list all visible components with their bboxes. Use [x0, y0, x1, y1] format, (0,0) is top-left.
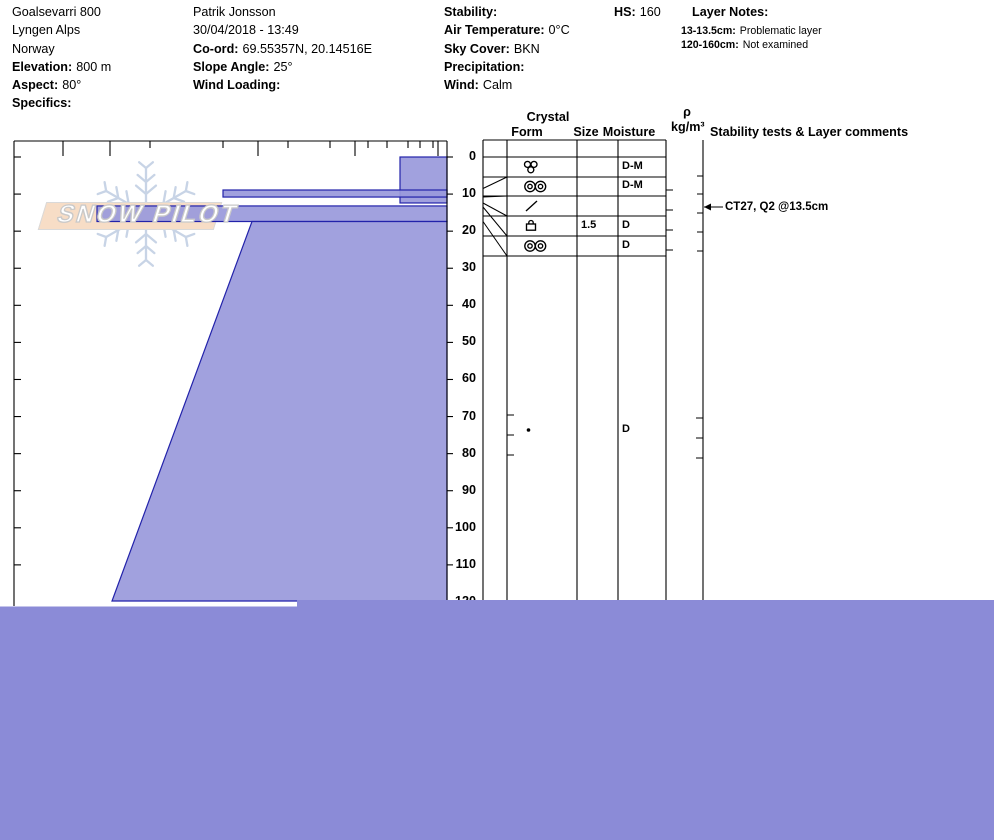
moisture-cell: D-M	[622, 160, 643, 172]
comments-header: Stability tests & Layer comments	[710, 125, 908, 139]
form-header: Form	[504, 125, 550, 139]
stability-test-comment: CT27, Q2 @13.5cm	[725, 201, 828, 213]
moisture-cell: D-M	[622, 179, 643, 191]
grain-symbols	[525, 161, 546, 431]
crystal-header: Crystal	[510, 110, 586, 124]
not-examined-block	[0, 600, 994, 840]
comment-arrow-icon	[704, 204, 723, 211]
moisture-header: Moisture	[602, 125, 656, 139]
layer-bar	[223, 190, 447, 197]
table-grid	[483, 140, 703, 600]
moisture-cell: D	[622, 219, 630, 231]
snowpilot-report-page: Goalsevarri 800 Lyngen Alps Norway Eleva…	[0, 0, 994, 840]
density-symbol-header: ρ	[671, 105, 703, 119]
moisture-cell-deep: D	[622, 423, 630, 435]
layer-ramp	[112, 222, 447, 602]
density-unit-header: kg/m³	[671, 120, 703, 134]
moisture-cell: D	[622, 239, 630, 251]
logo-text: SNOW PILOT	[54, 201, 242, 228]
size-cell: 1.5	[581, 219, 596, 231]
